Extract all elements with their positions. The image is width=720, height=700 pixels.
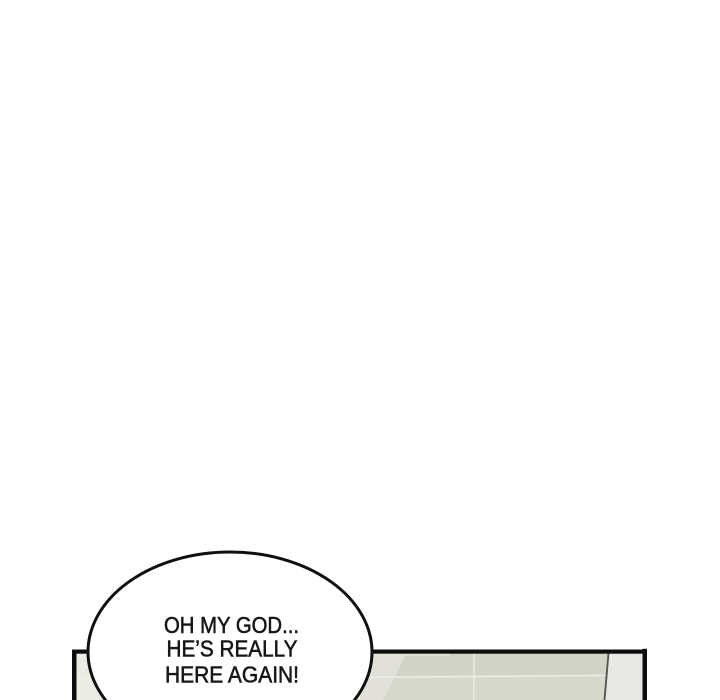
svg-text:HE’S REALLY: HE’S REALLY xyxy=(167,636,298,662)
svg-text:HERE AGAIN!: HERE AGAIN! xyxy=(165,662,299,688)
svg-text:OH MY GOD...: OH MY GOD... xyxy=(164,612,299,638)
